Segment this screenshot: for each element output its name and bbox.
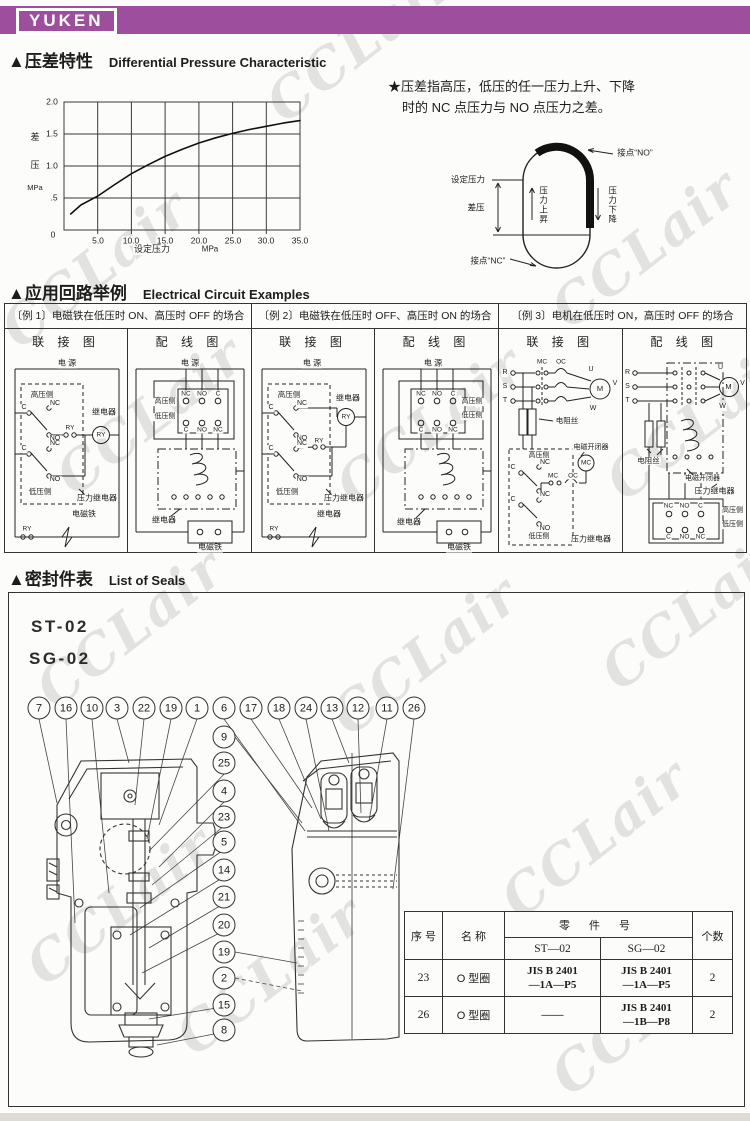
seal-callout-19: 19: [160, 697, 183, 720]
pressure-note-line1: ★压差指高压，低压的任一压力上升、下降: [388, 76, 744, 97]
diagram-label: 2.0: [45, 97, 59, 106]
diagram-label: RY: [341, 413, 352, 420]
diagram-label: 电阻丝: [555, 417, 580, 425]
diagram-label: 压力上昇: [537, 186, 548, 224]
seal-callout-24: 24: [295, 697, 318, 720]
diagram-label: MC: [536, 358, 548, 365]
diagram-label: NO: [539, 525, 552, 533]
example-1-col-connection: 联 接 图: [5, 329, 128, 351]
diagram-label: 高压侧: [721, 507, 744, 515]
chart-curve: [71, 121, 300, 214]
diagram-label: NC: [296, 440, 308, 448]
seal-view-side: [292, 753, 399, 1041]
top-banner: YUKEN: [0, 6, 750, 34]
diagram-label: 高压侧: [30, 391, 55, 399]
diagram-label: 电 源: [57, 360, 77, 369]
example-2-connection-diagram: 电 源高压侧继电器CNCNORYRYCNCNO低压侧压力继电器继电器RY: [252, 351, 375, 552]
seal-callout-2: 2: [213, 967, 236, 990]
diagram-label: C: [215, 390, 222, 397]
diagram-label: NO: [431, 426, 443, 433]
seal-callout-21: 21: [213, 886, 236, 909]
diagram-label: 压力继电器: [76, 495, 118, 504]
parts-row-26-qty: 2: [693, 997, 733, 1034]
diagram-label: 差: [29, 133, 40, 143]
seal-callout-17: 17: [240, 697, 263, 720]
scan-edge: [0, 1113, 750, 1121]
example-3-col-connection: 联 接 图: [499, 329, 623, 351]
diagram-label: RY: [96, 431, 107, 438]
diagram-label: C: [183, 426, 190, 433]
seal-callout-1: 1: [186, 697, 209, 720]
parts-table: 序 号 名 称 零 件 号 个数 ST—02 SG—02 23 O 型圈 JIS…: [404, 911, 733, 1034]
diagram-label: 低压侧: [28, 488, 53, 496]
seals-box: ST-02 SG-02: [8, 592, 745, 1107]
seal-callout-19: 19: [213, 941, 236, 964]
example-2-col-connection: 联 接 图: [252, 329, 375, 351]
seal-callout-6: 6: [213, 697, 236, 720]
diagram-label: 0: [50, 230, 57, 239]
diagram-label: S: [502, 383, 509, 391]
diagram-label: 电磁开闭器: [573, 444, 610, 452]
section-pressure-heading: ▲压差特性 Differential Pressure Characterist…: [8, 47, 326, 72]
diagram-label: 接点“NO”: [616, 148, 653, 157]
diagram-label: NC: [49, 400, 61, 408]
diagram-label: NO: [296, 476, 309, 484]
seal-callout-20: 20: [213, 914, 236, 937]
seal-callout-16: 16: [55, 697, 78, 720]
example-3-caption: 〔例 3〕电机在低压时 ON，高压时 OFF 的场合: [499, 304, 746, 329]
parts-col-no: 序 号: [405, 912, 443, 960]
catalog-page: { "banner": {"logo": "YUKEN", "color": "…: [0, 0, 750, 1121]
diagram-label: V: [612, 380, 619, 388]
diagram-label: 电磁铁: [197, 544, 223, 553]
diagram-label: NO: [431, 390, 443, 397]
diagram-label: C: [267, 445, 274, 453]
seal-callout-12: 12: [347, 697, 370, 720]
example-3-col-wiring: 配 线 图: [623, 329, 747, 351]
diagram-label: 1.5: [45, 129, 59, 138]
parts-row-23-qty: 2: [693, 960, 733, 997]
diagram-label: S: [624, 383, 631, 391]
diagram-label: NC: [695, 533, 706, 540]
diagram-label: 继电器: [316, 511, 342, 520]
diagram-label: U: [587, 366, 594, 374]
seal-callout-5: 5: [213, 831, 236, 854]
parts-col-name: 名 称: [443, 912, 505, 960]
diagram-label: M: [724, 383, 732, 391]
seal-callout-18: 18: [268, 697, 291, 720]
diagram-label: 继电器: [396, 519, 422, 528]
diagram-label: T: [502, 397, 508, 405]
diagram-label: NO: [196, 426, 208, 433]
seal-callout-13: 13: [321, 697, 344, 720]
diagram-label: 高压侧: [277, 391, 302, 399]
example-2-col-wiring: 配 线 图: [375, 329, 498, 351]
section-circuit-heading: ▲应用回路举例 Electrical Circuit Examples: [8, 279, 310, 304]
pressure-note: ★压差指高压，低压的任一压力上升、下降 时的 NC 点压力与 NO 点压力之差。: [388, 76, 744, 118]
diagram-label: NC: [212, 426, 223, 433]
diagram-label: 接点“NC”: [470, 256, 507, 265]
diagram-label: RY: [65, 424, 76, 431]
parts-col-qty: 个数: [693, 912, 733, 960]
diagram-label: NO: [679, 533, 691, 540]
seal-callout-3: 3: [106, 697, 129, 720]
parts-sub-sg02: SG—02: [601, 938, 693, 960]
example-1-connection-diagram: 电 源高压侧CNCNORY继电器RYCNCNO低压侧压力继电器电磁铁RY: [5, 351, 128, 552]
diagram-label: C: [418, 426, 425, 433]
diagram-label: 电 源: [423, 360, 443, 369]
diagram-label: 5.0: [91, 236, 105, 245]
diagram-label: OC: [555, 358, 567, 365]
seals-title-en: List of Seals: [109, 573, 186, 588]
pressure-title-cn: ▲压差特性: [8, 47, 93, 72]
diagram-label: U: [717, 364, 724, 372]
example-3-wiring-diagram: RSTUVWM电阻丝电磁开闭器压力继电器NCNOCCNONC高压侧低压侧: [623, 351, 747, 552]
diagram-label: 电磁铁: [446, 544, 472, 553]
diagram-label: 35.0: [291, 236, 310, 245]
part-no-line: ——: [507, 1008, 598, 1022]
diagram-label: 压力下降: [606, 186, 617, 224]
parts-row-23-sg: JIS B 2401 —1A—P5: [601, 960, 693, 997]
example-2-caption: 〔例 2〕电磁铁在低压时 OFF、高压时 ON 的场合: [252, 304, 498, 329]
part-no-line: —1B—P8: [603, 1015, 690, 1029]
diagram-label: MC: [580, 459, 592, 466]
e1-wiring-art: [128, 351, 251, 552]
pressure-chart: 2.01.51.0.505.010.015.020.025.030.035.0差…: [26, 86, 318, 264]
diagram-label: RY: [314, 437, 325, 444]
diagram-label: NC: [447, 426, 458, 433]
diagram-label: .5: [49, 193, 58, 202]
diagram-label: 低压侧: [461, 412, 484, 420]
parts-row-23-no: 23: [405, 960, 443, 997]
diagram-label: 电磁开闭器: [684, 475, 721, 483]
diagram-label: R: [501, 369, 508, 377]
diagram-label: NC: [663, 502, 674, 509]
parts-row-23-st: JIS B 2401 —1A—P5: [505, 960, 601, 997]
diagram-label: 低压侧: [528, 533, 551, 541]
diagram-label: C: [697, 502, 704, 509]
parts-sub-st02: ST—02: [505, 938, 601, 960]
diagram-label: 电磁铁: [71, 511, 97, 520]
diagram-label: 设定压力: [450, 175, 486, 184]
parts-row-26: 26 O 型圈 —— JIS B 2401 —1B—P8 2: [405, 997, 733, 1034]
diagram-label: NO: [679, 502, 691, 509]
diagram-label: NC: [296, 400, 308, 408]
diagram-label: V: [739, 380, 746, 388]
seal-callout-10: 10: [81, 697, 104, 720]
diagram-label: 电阻丝: [636, 457, 661, 465]
diagram-label: NC: [49, 440, 61, 448]
diagram-label: 低压侧: [275, 488, 300, 496]
diagram-label: 压力继电器: [694, 488, 736, 497]
example-3: 〔例 3〕电机在低压时 ON，高压时 OFF 的场合 联 接 图 配 线 图: [499, 304, 746, 552]
diagram-label: 压力继电器: [570, 536, 612, 545]
seal-callout-11: 11: [376, 697, 399, 720]
seal-callout-8: 8: [213, 1019, 236, 1042]
diagram-label: W: [718, 403, 727, 411]
yuken-logo-text: YUKEN: [29, 11, 104, 30]
diagram-label: RY: [22, 525, 33, 532]
diagram-label: NO: [196, 390, 208, 397]
example-2-wiring-diagram: 电 源NCNOC高压侧低压侧CNONC继电器电磁铁: [375, 351, 498, 552]
diagram-label: 继电器: [151, 517, 177, 526]
circuit-title-en: Electrical Circuit Examples: [143, 287, 310, 302]
example-1: 〔例 1〕电磁铁在低压时 ON、高压时 OFF 的场合 联 接 图 配 线 图: [5, 304, 252, 552]
parts-row-26-st: ——: [505, 997, 601, 1034]
diagram-label: 电 源: [302, 360, 322, 369]
diagram-label: MPa: [26, 184, 43, 192]
part-no-line: —1A—P5: [603, 978, 690, 992]
diagram-label: NO: [49, 476, 62, 484]
diagram-label: 高压侧: [154, 398, 177, 406]
diagram-label: C: [20, 404, 27, 412]
diagram-label: T: [624, 397, 630, 405]
diagram-label: C: [665, 533, 672, 540]
diagram-label: R: [624, 369, 631, 377]
diagram-label: C: [509, 496, 516, 504]
loop-diagram: 设定压力差压压力上昇压力下降接点“NO”接点“NC”: [430, 120, 742, 280]
diagram-label: C: [267, 404, 274, 412]
seal-callout-23: 23: [213, 806, 236, 829]
pressure-note-line2: 时的 NC 点压力与 NO 点压力之差。: [402, 97, 744, 118]
diagram-label: C: [509, 464, 516, 472]
diagram-label: 30.0: [257, 236, 276, 245]
section-seals-heading: ▲密封件表 List of Seals: [8, 565, 185, 590]
part-no-line: JIS B 2401: [603, 1001, 690, 1015]
diagram-label: 高压侧: [461, 398, 484, 406]
diagram-label: 25.0: [224, 236, 243, 245]
diagram-label: C: [20, 445, 27, 453]
part-no-line: JIS B 2401: [507, 964, 598, 978]
diagram-label: 压力继电器: [323, 495, 365, 504]
circuit-examples-table: 〔例 1〕电磁铁在低压时 ON、高压时 OFF 的场合 联 接 图 配 线 图: [4, 303, 747, 553]
seal-callout-7: 7: [28, 697, 51, 720]
diagram-label: 电 源: [180, 360, 200, 369]
parts-row-26-sg: JIS B 2401 —1B—P8: [601, 997, 693, 1034]
example-3-connection-diagram: RSTMCOCUVWM电阻丝高压侧CNCNO电磁开闭器MCMCOCCNCNO低压…: [499, 351, 623, 552]
diagram-label: OC: [567, 472, 579, 479]
parts-row-26-name: O 型圈: [443, 997, 505, 1034]
circuit-title-cn: ▲应用回路举例: [8, 279, 127, 304]
seals-title-cn: ▲密封件表: [8, 565, 93, 590]
diagram-label: M: [596, 385, 604, 393]
diagram-label: 设定压力: [133, 245, 171, 255]
example-2: 〔例 2〕电磁铁在低压时 OFF、高压时 ON 的场合 联 接 图 配 线 图: [252, 304, 499, 552]
seal-callout-4: 4: [213, 780, 236, 803]
diagram-label: 继电器: [91, 409, 117, 418]
example-1-caption: 〔例 1〕电磁铁在低压时 ON、高压时 OFF 的场合: [5, 304, 251, 329]
diagram-label: NC: [539, 459, 551, 467]
parts-row-23: 23 O 型圈 JIS B 2401 —1A—P5 JIS B 2401 —1A…: [405, 960, 733, 997]
diagram-label: C: [450, 390, 457, 397]
seal-callout-25: 25: [213, 752, 236, 775]
diagram-label: 继电器: [335, 395, 361, 404]
parts-row-26-no: 26: [405, 997, 443, 1034]
pressure-title-en: Differential Pressure Characteristic: [109, 55, 326, 70]
diagram-label: 差压: [466, 203, 485, 212]
diagram-label: 压: [29, 161, 40, 171]
diagram-label: MPa: [201, 246, 219, 255]
yuken-logo: YUKEN: [16, 8, 117, 34]
diagram-label: 低压侧: [154, 413, 177, 421]
diagram-label: 1.0: [45, 161, 59, 170]
diagram-label: 低压侧: [721, 521, 744, 529]
seal-callout-26: 26: [403, 697, 426, 720]
part-no-line: —1A—P5: [507, 978, 598, 992]
diagram-label: W: [589, 405, 598, 413]
seal-callout-15: 15: [213, 994, 236, 1017]
parts-col-part: 零 件 号: [505, 912, 693, 938]
seal-callout-14: 14: [213, 859, 236, 882]
diagram-label: NC: [180, 390, 191, 397]
example-1-col-wiring: 配 线 图: [128, 329, 251, 351]
parts-row-23-name: O 型圈: [443, 960, 505, 997]
part-no-line: JIS B 2401: [603, 964, 690, 978]
diagram-label: NC: [539, 491, 551, 499]
diagram-label: NC: [415, 390, 426, 397]
diagram-label: MC: [547, 472, 559, 479]
e2-wiring-art: [375, 351, 498, 552]
seal-callout-22: 22: [133, 697, 156, 720]
seal-callout-9: 9: [213, 726, 236, 749]
diagram-label: RY: [269, 525, 280, 532]
example-1-wiring-diagram: 电 源NCNOC高压侧低压侧CNONC继电器电磁铁: [128, 351, 251, 552]
